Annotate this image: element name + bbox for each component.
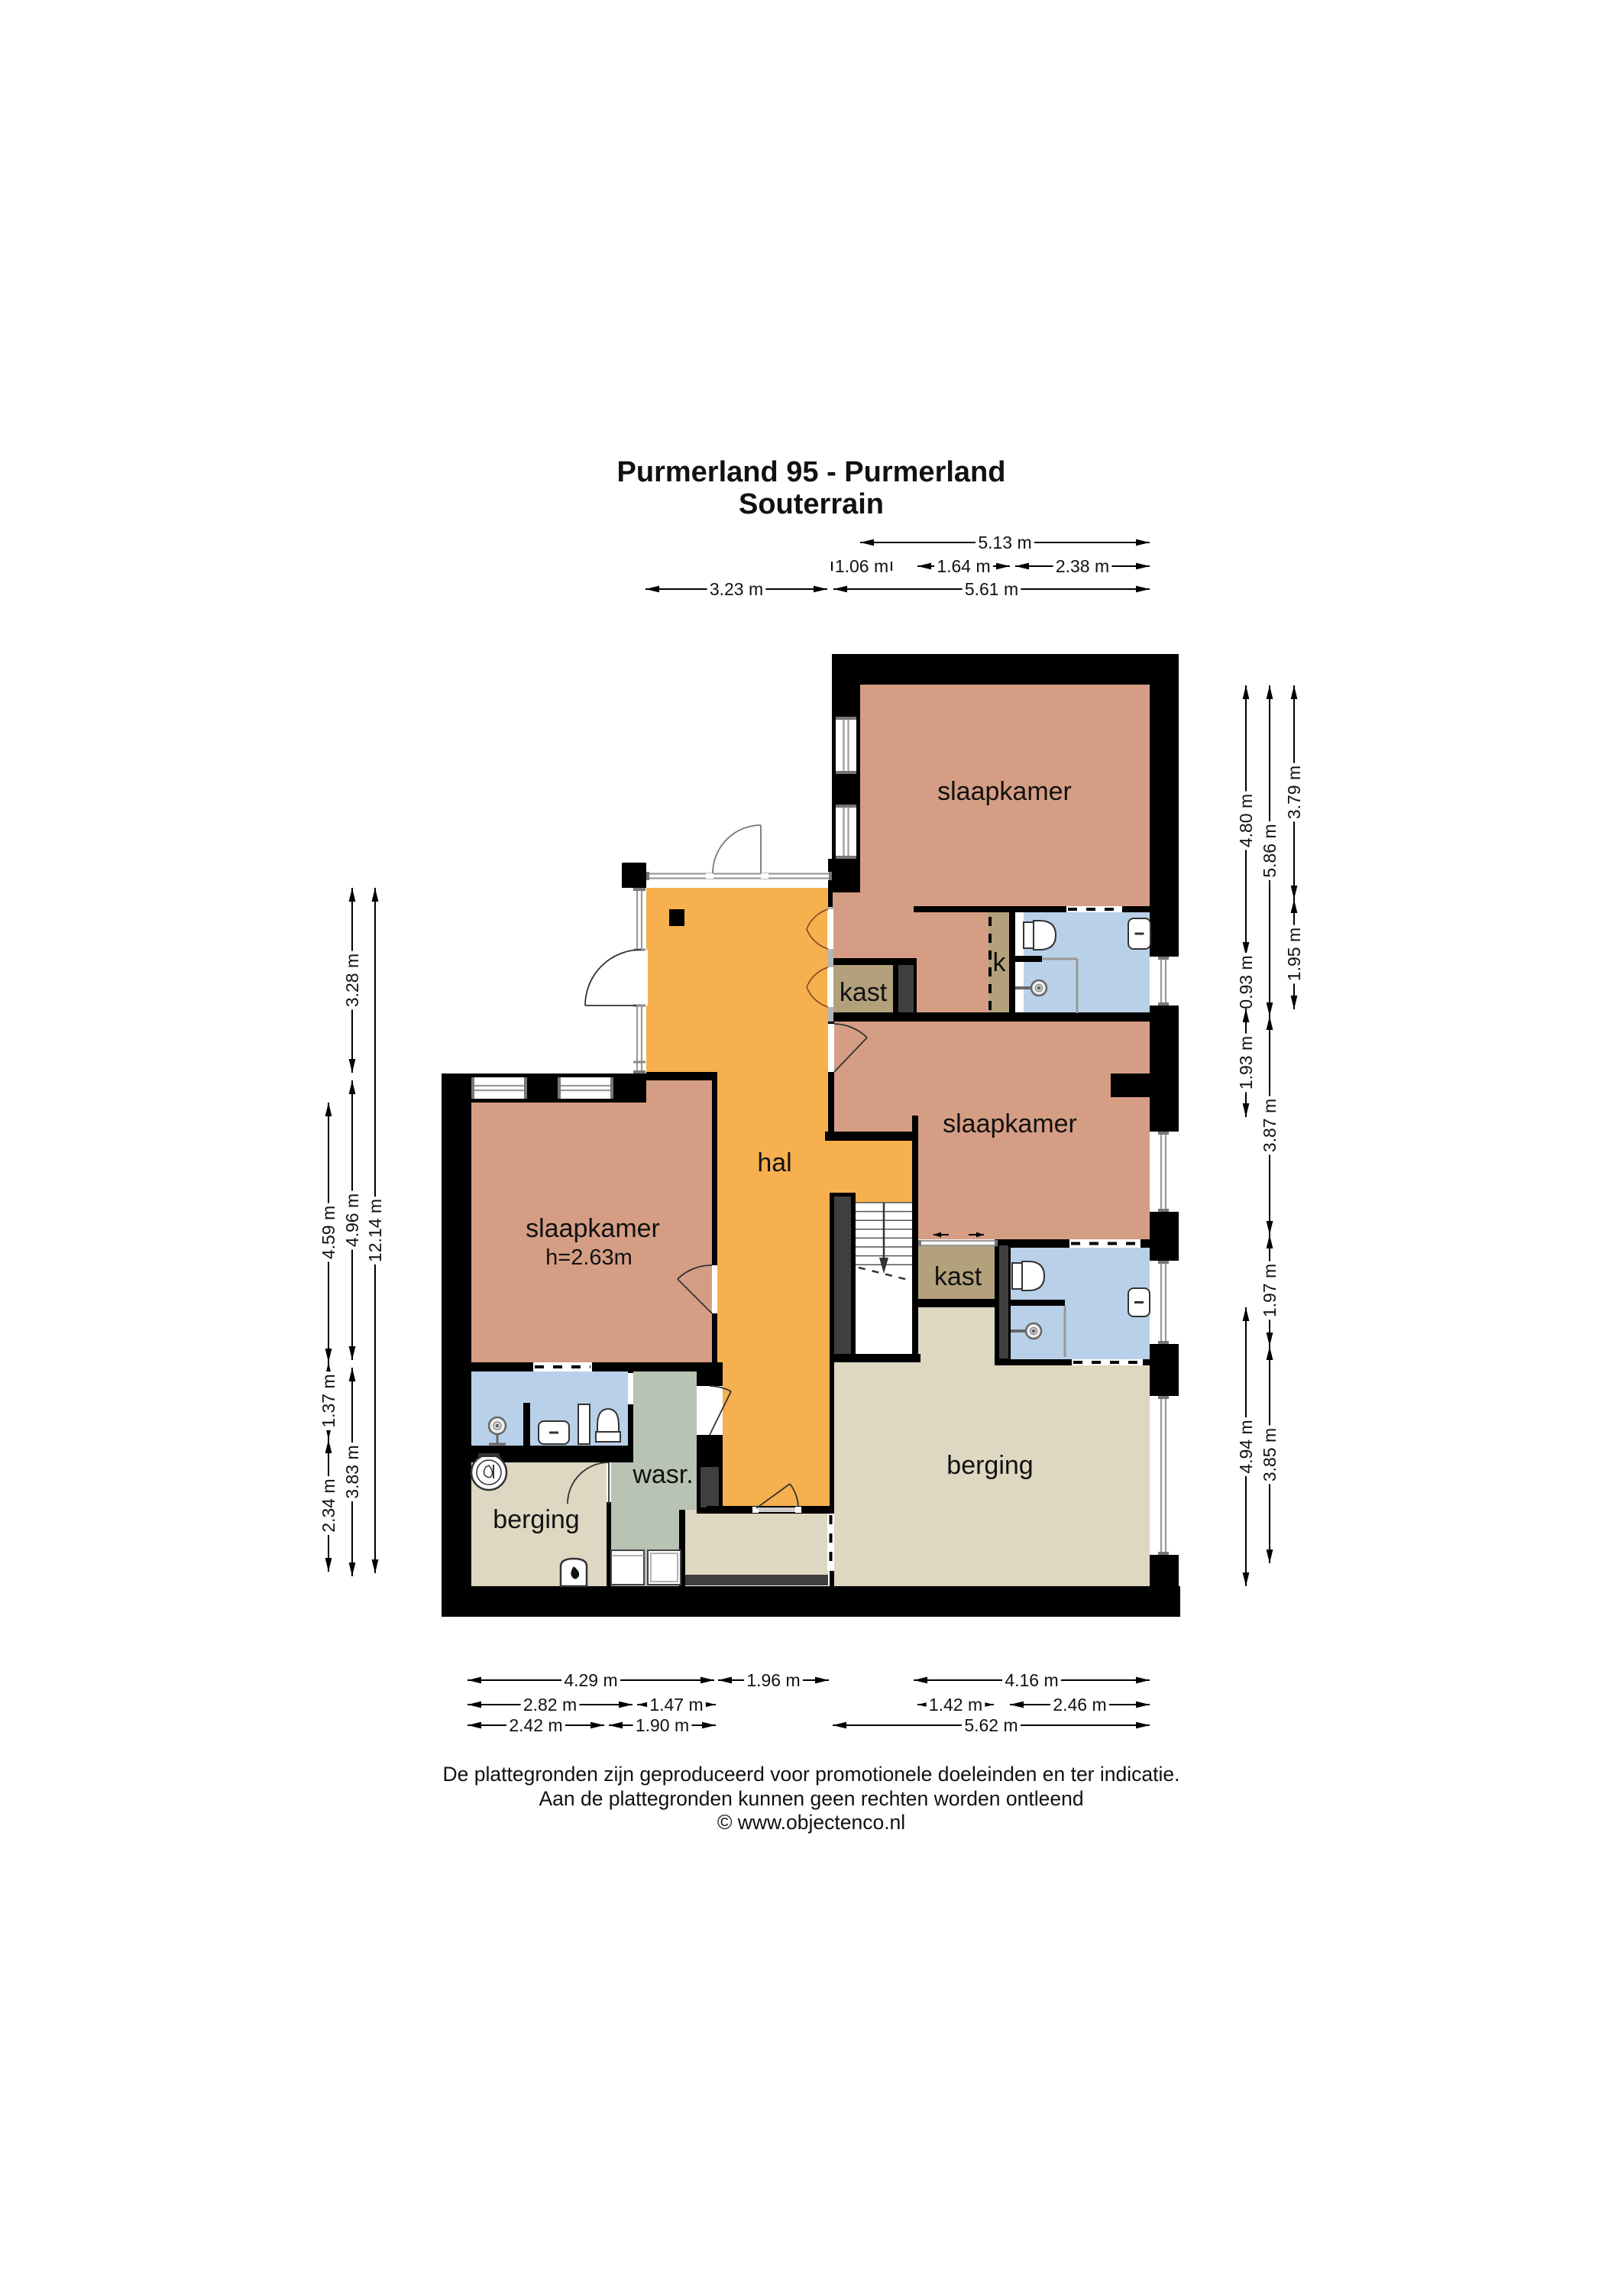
svg-text:Purmerland 95 - Purmerland: Purmerland 95 - Purmerland [617,456,1006,488]
svg-text:1.97 m: 1.97 m [1260,1264,1280,1317]
svg-text:4.16 m: 4.16 m [1005,1670,1058,1690]
svg-text:slaapkamer: slaapkamer [937,777,1072,806]
svg-text:1.90 m: 1.90 m [636,1715,689,1735]
svg-text:slaapkamer: slaapkamer [526,1214,660,1243]
svg-text:3.79 m: 3.79 m [1284,766,1304,819]
svg-text:2.38 m: 2.38 m [1056,556,1109,576]
svg-text:wasr.: wasr. [632,1460,693,1489]
svg-text:slaapkamer: slaapkamer [943,1109,1077,1138]
svg-text:5.61 m: 5.61 m [965,579,1018,599]
svg-text:1.96 m: 1.96 m [746,1670,800,1690]
svg-text:2.42 m: 2.42 m [509,1715,562,1735]
svg-text:1.93 m: 1.93 m [1236,1036,1256,1090]
svg-text:5.86 m: 5.86 m [1260,824,1280,877]
svg-text:k: k [993,948,1007,977]
svg-text:4.94 m: 4.94 m [1236,1420,1256,1473]
svg-text:kast: kast [934,1262,982,1291]
svg-text:hal: hal [757,1148,791,1177]
svg-text:Aan de plattegronden kunnen ge: Aan de plattegronden kunnen geen rechten… [539,1787,1083,1810]
svg-text:5.62 m: 5.62 m [964,1715,1018,1735]
svg-text:3.85 m: 3.85 m [1260,1428,1280,1482]
svg-text:4.29 m: 4.29 m [564,1670,617,1690]
svg-text:h=2.63m: h=2.63m [545,1245,633,1270]
svg-text:1.64 m: 1.64 m [937,556,990,576]
svg-text:2.82 m: 2.82 m [523,1695,577,1715]
svg-text:berging: berging [946,1451,1033,1480]
svg-text:12.14 m: 12.14 m [365,1199,385,1262]
svg-text:2.46 m: 2.46 m [1053,1695,1106,1715]
svg-text:3.23 m: 3.23 m [710,579,763,599]
svg-text:1.95 m: 1.95 m [1284,928,1304,981]
svg-text:3.87 m: 3.87 m [1260,1099,1280,1152]
svg-text:De plattegronden zijn geproduc: De plattegronden zijn geproduceerd voor … [443,1763,1180,1786]
svg-text:2.34 m: 2.34 m [319,1478,338,1532]
svg-text:4.80 m: 4.80 m [1236,794,1256,847]
svg-text:4.96 m: 4.96 m [342,1193,362,1247]
svg-text:1.42 m: 1.42 m [929,1695,982,1715]
svg-text:5.13 m: 5.13 m [978,533,1031,552]
svg-text:Souterrain: Souterrain [739,488,884,520]
svg-text:© www.objectenco.nl: © www.objectenco.nl [717,1811,905,1834]
svg-text:4.59 m: 4.59 m [319,1206,338,1259]
svg-text:berging: berging [493,1505,579,1534]
svg-text:3.28 m: 3.28 m [342,954,362,1007]
svg-text:1.06 m: 1.06 m [835,556,888,576]
svg-text:0.93 m: 0.93 m [1236,955,1256,1009]
svg-text:1.47 m: 1.47 m [649,1695,703,1715]
svg-text:1.37 m: 1.37 m [319,1374,338,1427]
svg-text:kast: kast [840,978,888,1007]
svg-text:3.83 m: 3.83 m [342,1445,362,1498]
